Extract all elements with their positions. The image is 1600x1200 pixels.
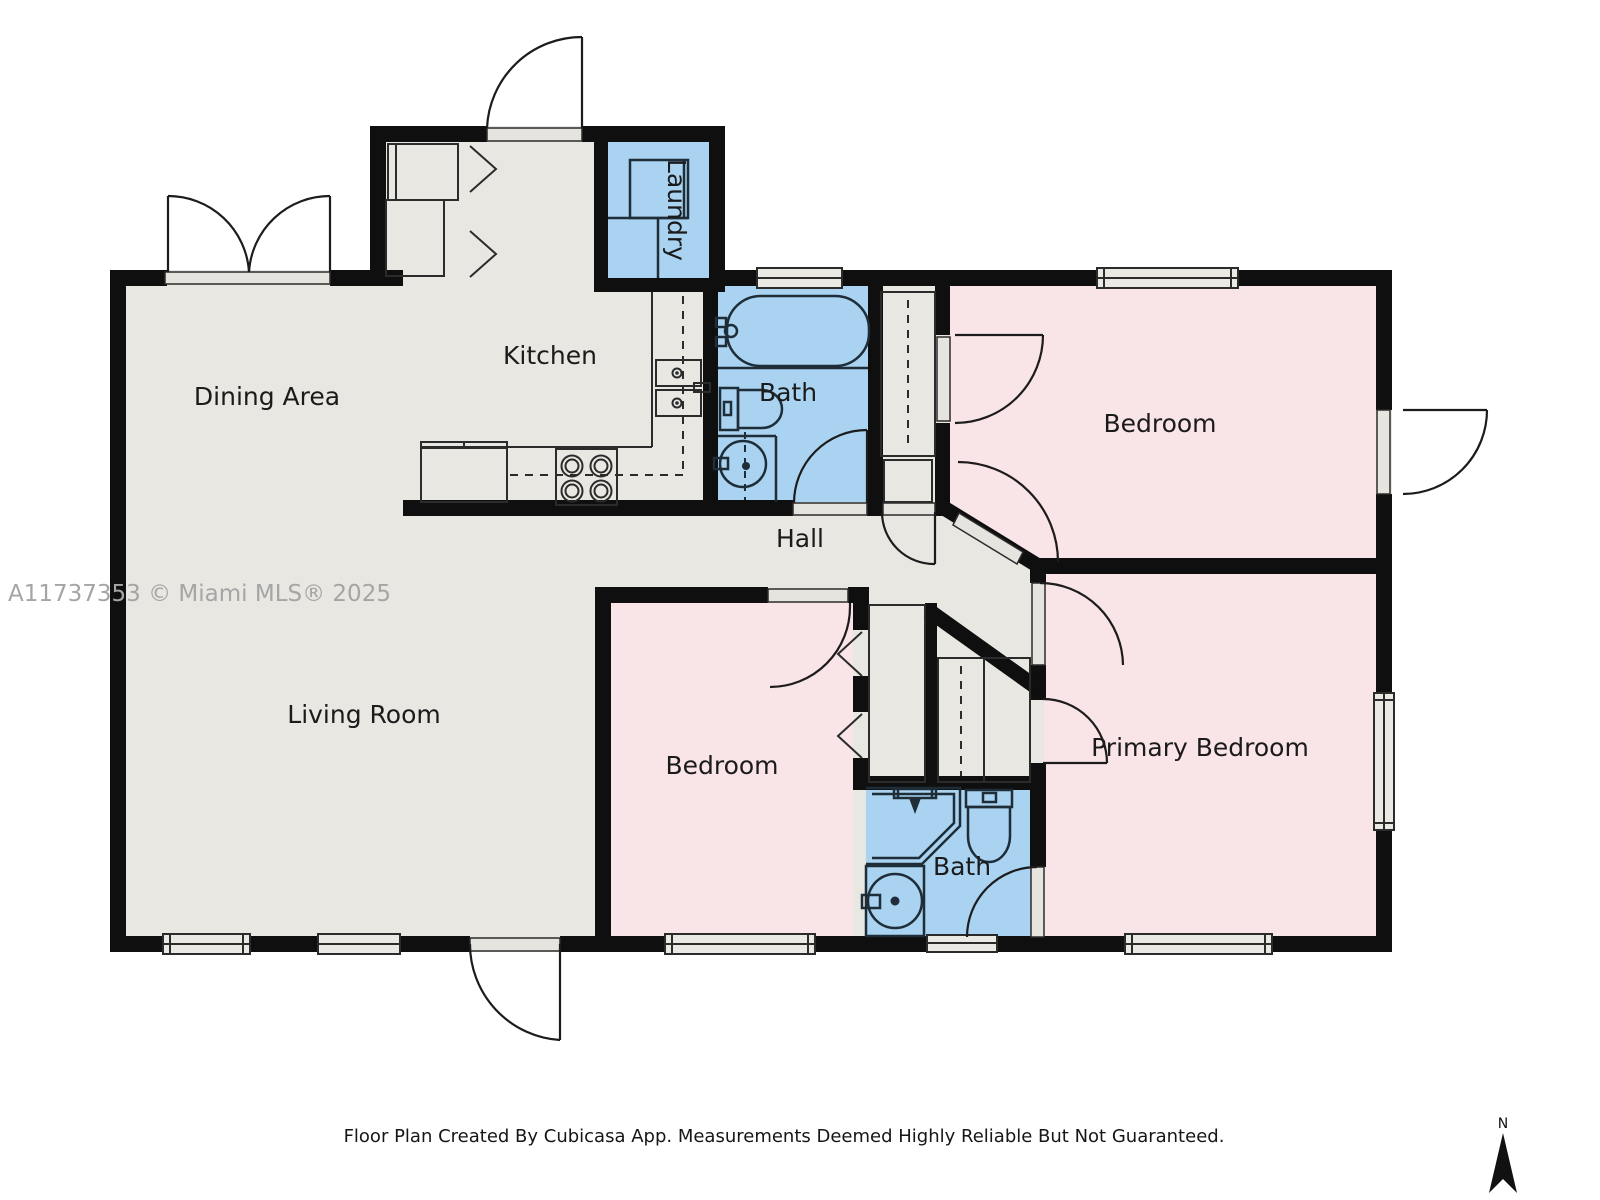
floorplan-svg: Dining Area Kitchen Laundry Bath Hall Be… (0, 0, 1600, 1200)
north-label: N (1498, 1116, 1508, 1132)
window (318, 934, 400, 954)
room-label-bath-bottom: Bath (933, 852, 991, 881)
window (1125, 934, 1272, 954)
room-label-bedroom-bottom: Bedroom (665, 751, 778, 780)
entry-door-top (487, 37, 582, 141)
window (1097, 268, 1238, 288)
window (757, 268, 842, 288)
footer-disclaimer: Floor Plan Created By Cubicasa App. Meas… (344, 1126, 1225, 1147)
room-label-living-room: Living Room (287, 700, 440, 729)
room-label-kitchen: Kitchen (503, 341, 597, 370)
window (665, 934, 815, 954)
room-label-dining-area: Dining Area (194, 382, 340, 411)
room-label-laundry: Laundry (662, 159, 691, 261)
bedroom-exterior-door (1377, 410, 1487, 494)
window (163, 934, 250, 954)
living-exterior-door (470, 938, 560, 1040)
room-label-bath-top: Bath (759, 378, 817, 407)
room-label-primary-bedroom: Primary Bedroom (1091, 733, 1309, 762)
room-label-bedroom-top: Bedroom (1103, 409, 1216, 438)
window (1374, 693, 1394, 830)
window (927, 935, 997, 952)
watermark-text: A11737353 © Miami MLS® 2025 (8, 581, 391, 607)
floorplan-page: Dining Area Kitchen Laundry Bath Hall Be… (0, 0, 1600, 1200)
room-label-hall: Hall (776, 524, 824, 553)
north-arrow-shape (1489, 1133, 1517, 1193)
floors (110, 126, 1392, 952)
north-arrow-icon: N (1489, 1116, 1517, 1193)
